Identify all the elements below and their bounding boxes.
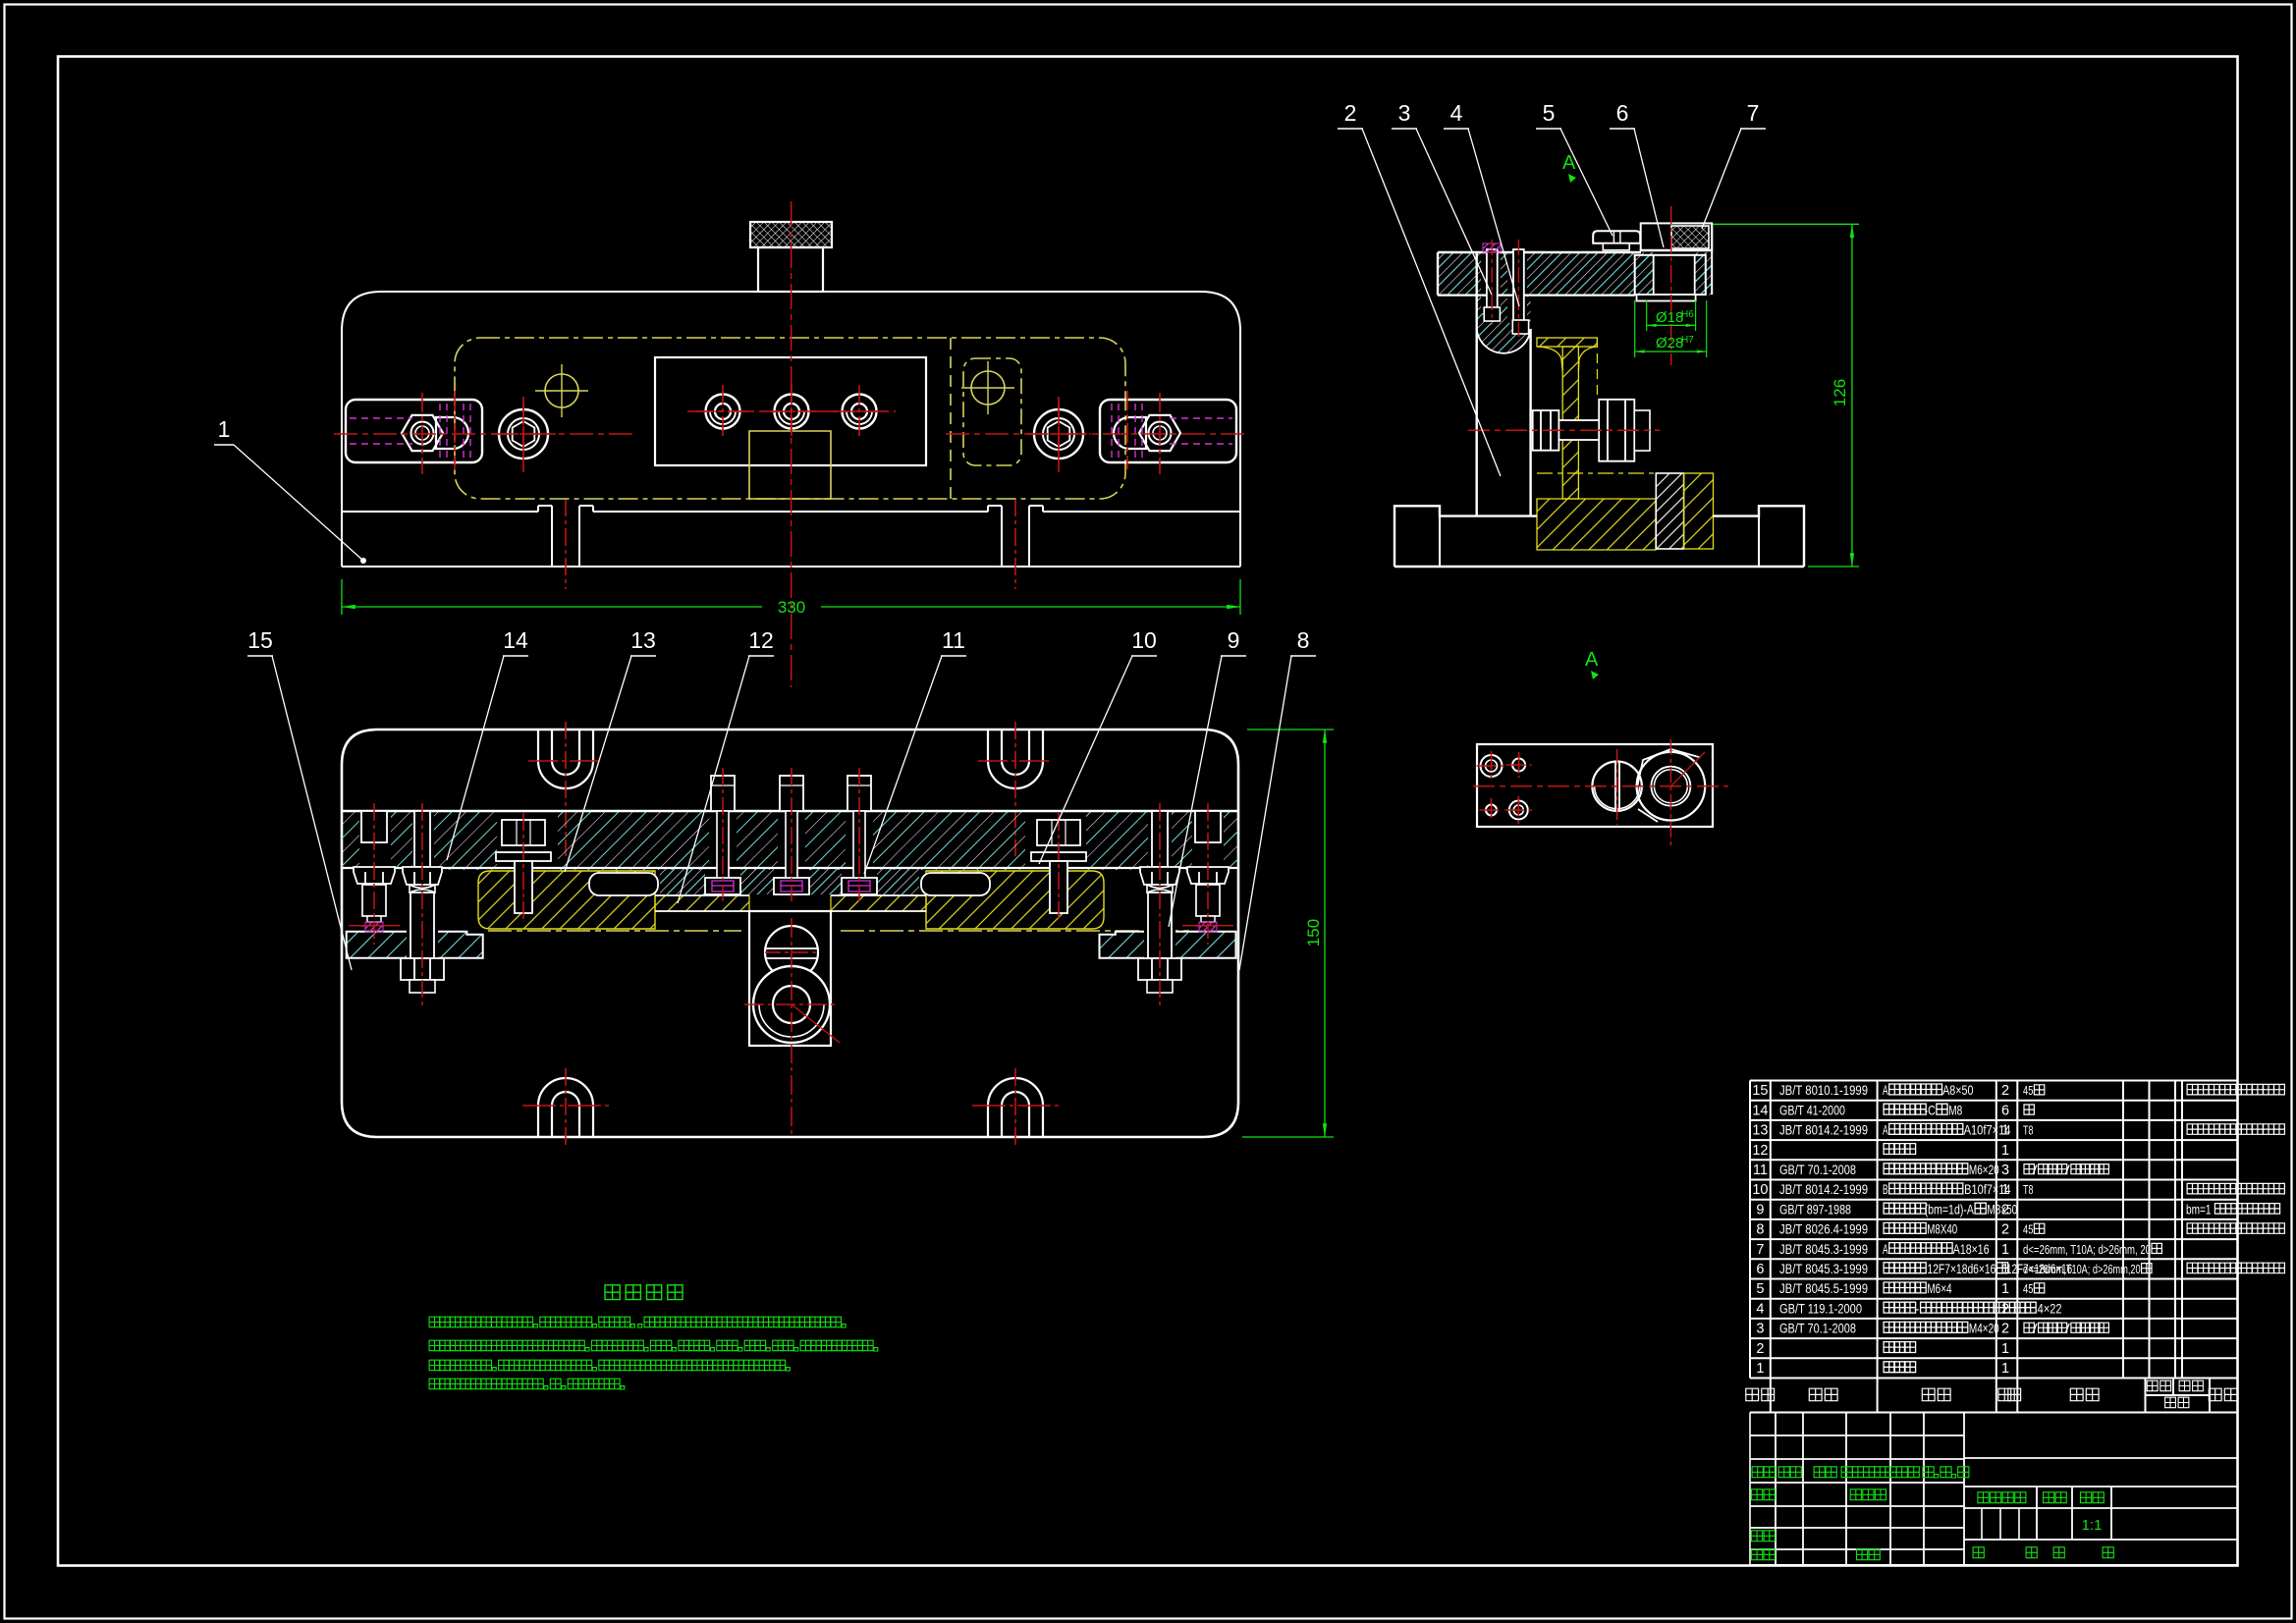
svg-text:7: 7 [1747, 100, 1760, 126]
svg-text:2: 2 [2001, 1222, 2009, 1238]
svg-text:1: 1 [218, 416, 231, 442]
svg-text:5: 5 [1543, 100, 1556, 126]
svg-text:d<=26mm, T10A; d>26mm, 20: d<=26mm, T10A; d>26mm, 20 [2023, 1242, 2151, 1257]
svg-text:1: 1 [2001, 1182, 2009, 1198]
svg-text:2: 2 [2001, 1322, 2009, 1337]
svg-text:6: 6 [1616, 100, 1629, 126]
svg-text:8: 8 [1756, 1222, 1764, 1238]
svg-text:1:1: 1:1 [2082, 1517, 2103, 1534]
svg-text:B: B [1883, 1181, 1888, 1197]
svg-text:3: 3 [1398, 100, 1411, 126]
svg-text:11: 11 [942, 627, 965, 653]
svg-text:A: A [1883, 1082, 1888, 1098]
svg-text:14: 14 [1752, 1103, 1768, 1118]
svg-text:330: 330 [778, 598, 805, 617]
svg-text:2: 2 [2001, 1301, 2009, 1317]
svg-text:5: 5 [1756, 1281, 1764, 1297]
svg-text:4: 4 [1450, 100, 1463, 126]
svg-text:9: 9 [1228, 627, 1240, 653]
svg-text:10: 10 [1752, 1182, 1768, 1198]
svg-text:12F7×18d6×16: 12F7×18d6×16 [1925, 1261, 1996, 1276]
svg-text:(bm=1d)-A: (bm=1d)-A [1925, 1201, 1975, 1217]
svg-text:A: A [1883, 1241, 1888, 1257]
svg-text:3: 3 [1756, 1322, 1764, 1337]
svg-text:1: 1 [2001, 1242, 2009, 1258]
svg-text:bm=1: bm=1 [2186, 1202, 2214, 1217]
svg-text:d<=26mm,T10A; d>26mm,20: d<=26mm,T10A; d>26mm,20 [2023, 1262, 2141, 1276]
svg-text:M4×20: M4×20 [1966, 1321, 1999, 1336]
svg-text:JB/T 8045.5-1999: JB/T 8045.5-1999 [1779, 1281, 1868, 1296]
svg-text:150: 150 [1304, 919, 1323, 947]
svg-text:6: 6 [2001, 1103, 2009, 1118]
svg-text:A: A [1883, 1122, 1888, 1138]
svg-text:4×22: 4×22 [2035, 1300, 2062, 1316]
svg-text:/: / [2065, 1322, 2071, 1336]
svg-text:1: 1 [2001, 1262, 2009, 1277]
svg-text:3: 3 [2001, 1163, 2009, 1178]
svg-text:9: 9 [1756, 1202, 1764, 1217]
svg-text:10: 10 [1131, 627, 1157, 653]
svg-text:13: 13 [1752, 1123, 1768, 1139]
svg-text:45: 45 [2023, 1222, 2033, 1237]
svg-text:15: 15 [247, 627, 273, 653]
svg-text:12: 12 [1752, 1143, 1768, 1159]
svg-text:GB/T 70.1-2008: GB/T 70.1-2008 [1779, 1163, 1856, 1177]
svg-text:Ø18: Ø18 [1656, 309, 1683, 326]
svg-text:JB/T 8026.4-1999: JB/T 8026.4-1999 [1779, 1222, 1868, 1237]
svg-text:1: 1 [2001, 1361, 2009, 1377]
svg-text:2: 2 [2001, 1083, 2009, 1099]
svg-text:M8X40: M8X40 [1925, 1221, 1958, 1237]
svg-text:JB/T 8045.3-1999: JB/T 8045.3-1999 [1779, 1242, 1868, 1257]
svg-text:-C: -C [1925, 1102, 1936, 1117]
svg-text:1: 1 [2001, 1123, 2009, 1139]
svg-text:14: 14 [503, 627, 528, 653]
svg-text:GB/T 119.1-2000: GB/T 119.1-2000 [1779, 1301, 1862, 1316]
svg-text:T8: T8 [2023, 1182, 2033, 1197]
svg-text:JB/T 8010.1-1999: JB/T 8010.1-1999 [1779, 1083, 1868, 1098]
svg-text:/: / [2032, 1322, 2038, 1336]
svg-text:1: 1 [1756, 1361, 1764, 1377]
svg-text:T8: T8 [2023, 1123, 2033, 1138]
svg-text:GB/T 41-2000: GB/T 41-2000 [1779, 1103, 1845, 1117]
svg-text:M8: M8 [1945, 1102, 1962, 1117]
svg-text:GB/T 897-1988: GB/T 897-1988 [1779, 1202, 1851, 1217]
svg-text:45: 45 [2023, 1281, 2033, 1296]
svg-text:H6: H6 [1681, 309, 1694, 320]
svg-text:126: 126 [1831, 379, 1849, 406]
svg-text:A18×16: A18×16 [1950, 1241, 1989, 1257]
svg-text:M6×20: M6×20 [1966, 1162, 1999, 1177]
svg-text:4: 4 [1756, 1301, 1764, 1317]
svg-text:13: 13 [630, 627, 656, 653]
svg-text:11: 11 [1753, 1163, 1768, 1178]
svg-text:/: / [2032, 1163, 2038, 1177]
svg-text:8: 8 [1297, 627, 1310, 653]
svg-text:/: / [2065, 1163, 2071, 1177]
svg-text:GB/T 70.1-2008: GB/T 70.1-2008 [1779, 1322, 1856, 1336]
svg-text:12: 12 [748, 627, 774, 653]
svg-text:15: 15 [1752, 1083, 1768, 1099]
svg-text:2: 2 [1756, 1341, 1764, 1357]
svg-text:JB/T 8014.2-1999: JB/T 8014.2-1999 [1779, 1182, 1868, 1197]
svg-text:JB/T 8045.3-1999: JB/T 8045.3-1999 [1779, 1262, 1868, 1276]
svg-text:M6×4: M6×4 [1925, 1280, 1952, 1296]
svg-text:1: 1 [2001, 1281, 2009, 1297]
svg-text:A: A [1585, 649, 1599, 671]
svg-text:7: 7 [1756, 1242, 1764, 1258]
svg-text:1: 1 [2001, 1341, 2009, 1357]
svg-text:Ø28: Ø28 [1656, 335, 1683, 352]
svg-text:JB/T 8014.2-1999: JB/T 8014.2-1999 [1779, 1123, 1868, 1138]
svg-text:1: 1 [2001, 1143, 2009, 1159]
svg-text:A8×50: A8×50 [1941, 1082, 1974, 1098]
svg-text:45: 45 [2023, 1083, 2033, 1098]
svg-text:2: 2 [2001, 1202, 2009, 1217]
svg-text:-: - [1914, 1300, 1920, 1316]
svg-text:H7: H7 [1681, 335, 1694, 346]
svg-text:2: 2 [1344, 100, 1357, 126]
svg-text:6: 6 [1756, 1262, 1764, 1277]
